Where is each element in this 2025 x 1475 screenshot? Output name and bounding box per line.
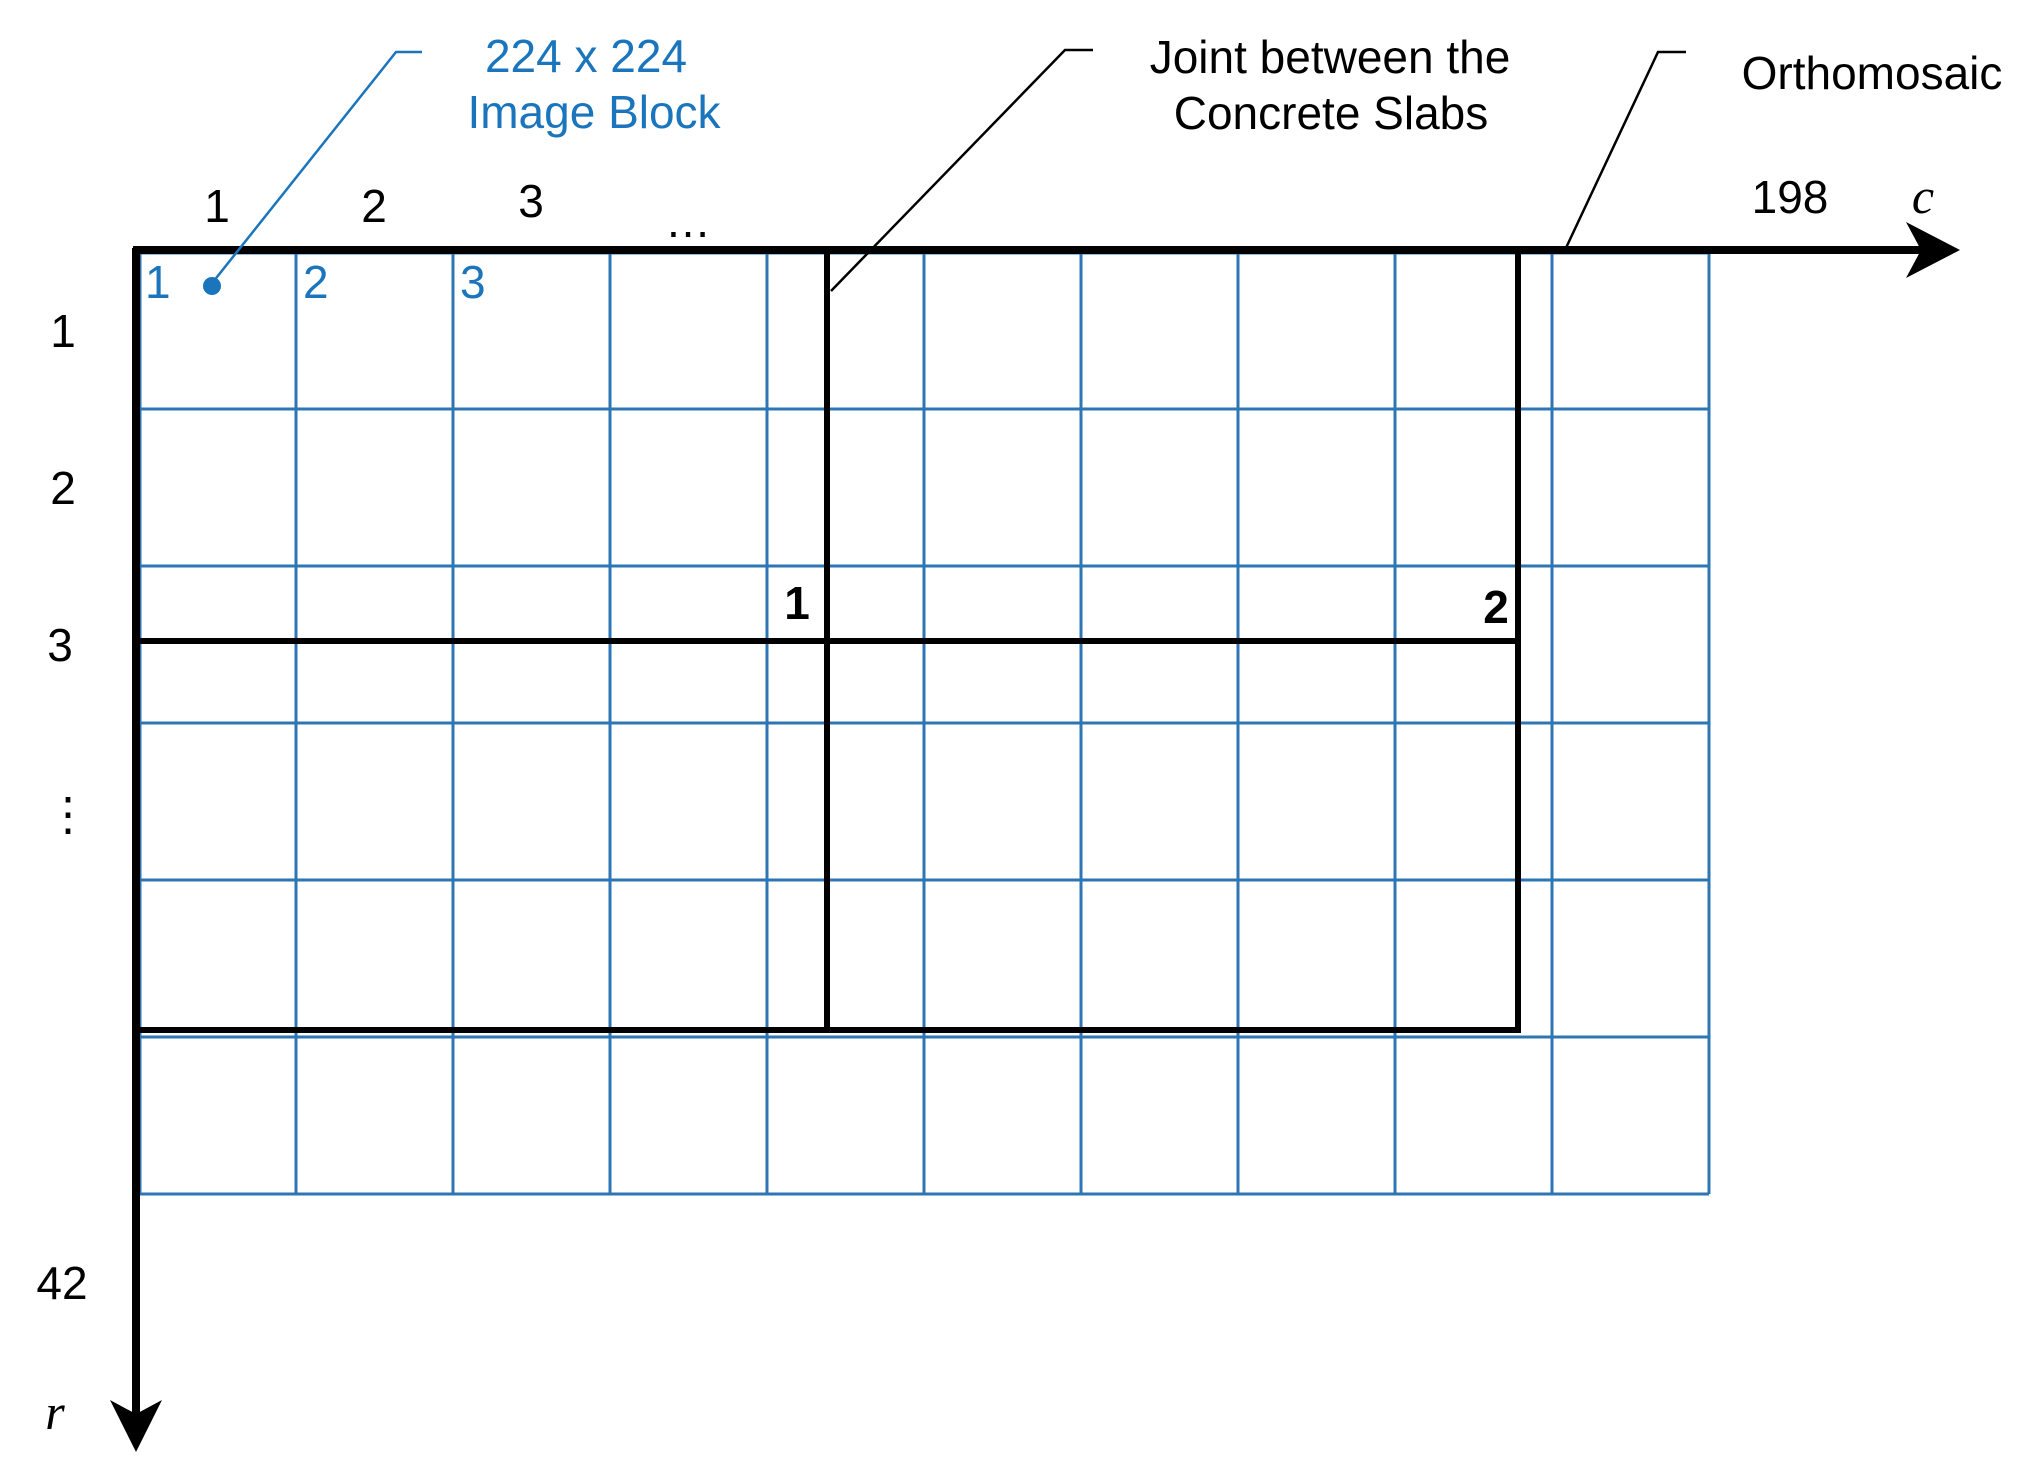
r-axis-letter: r <box>45 1384 65 1440</box>
cell-number-3: 3 <box>460 256 486 308</box>
orthomosaic-grid-diagram: 224 x 224 Image Block Joint between the … <box>0 0 2025 1475</box>
slab-joint-lines <box>139 253 1521 1033</box>
r-tick-dots: ⋮ <box>45 788 91 840</box>
joint-label-line2: Concrete Slabs <box>1174 87 1489 139</box>
c-tick-2: 2 <box>361 180 387 232</box>
slab-number-1: 1 <box>784 577 810 629</box>
c-tick-1: 1 <box>204 180 230 232</box>
image-block-grid <box>139 250 1709 1194</box>
c-axis-ticks: 1 2 3 … 198 c <box>204 168 1934 247</box>
joint-label-line1: Joint between the <box>1150 31 1511 83</box>
r-tick-2: 2 <box>50 462 76 514</box>
c-axis <box>133 222 1960 278</box>
joint-numbers: 1 2 <box>784 577 1509 633</box>
cell-number-2: 2 <box>303 256 329 308</box>
figure-page: { "colors": { "annotation_blue": "#1B75B… <box>0 0 2025 1475</box>
image-block-label-line1: 224 x 224 <box>485 30 687 82</box>
joint-leader-line <box>831 50 1093 291</box>
orthomosaic-label: Orthomosaic <box>1742 47 2003 99</box>
image-block-dot <box>203 277 221 295</box>
cell-number-1: 1 <box>145 256 171 308</box>
image-block-label-line2: Image Block <box>467 86 721 138</box>
c-tick-3: 3 <box>518 175 544 227</box>
r-tick-3: 3 <box>47 619 73 671</box>
slab-number-2: 2 <box>1483 581 1509 633</box>
r-tick-42: 42 <box>36 1257 87 1309</box>
c-tick-dots: … <box>665 195 711 247</box>
orthomosaic-leader-line <box>1565 52 1686 250</box>
annotation-labels: 224 x 224 Image Block Joint between the … <box>467 30 2002 139</box>
r-axis <box>110 248 162 1452</box>
r-axis-ticks: 1 2 3 ⋮ 42 r <box>36 305 91 1440</box>
c-axis-letter: c <box>1912 168 1934 224</box>
c-tick-198: 198 <box>1752 171 1829 223</box>
image-block-numbers: 1 2 3 <box>145 256 486 308</box>
r-tick-1: 1 <box>50 305 76 357</box>
